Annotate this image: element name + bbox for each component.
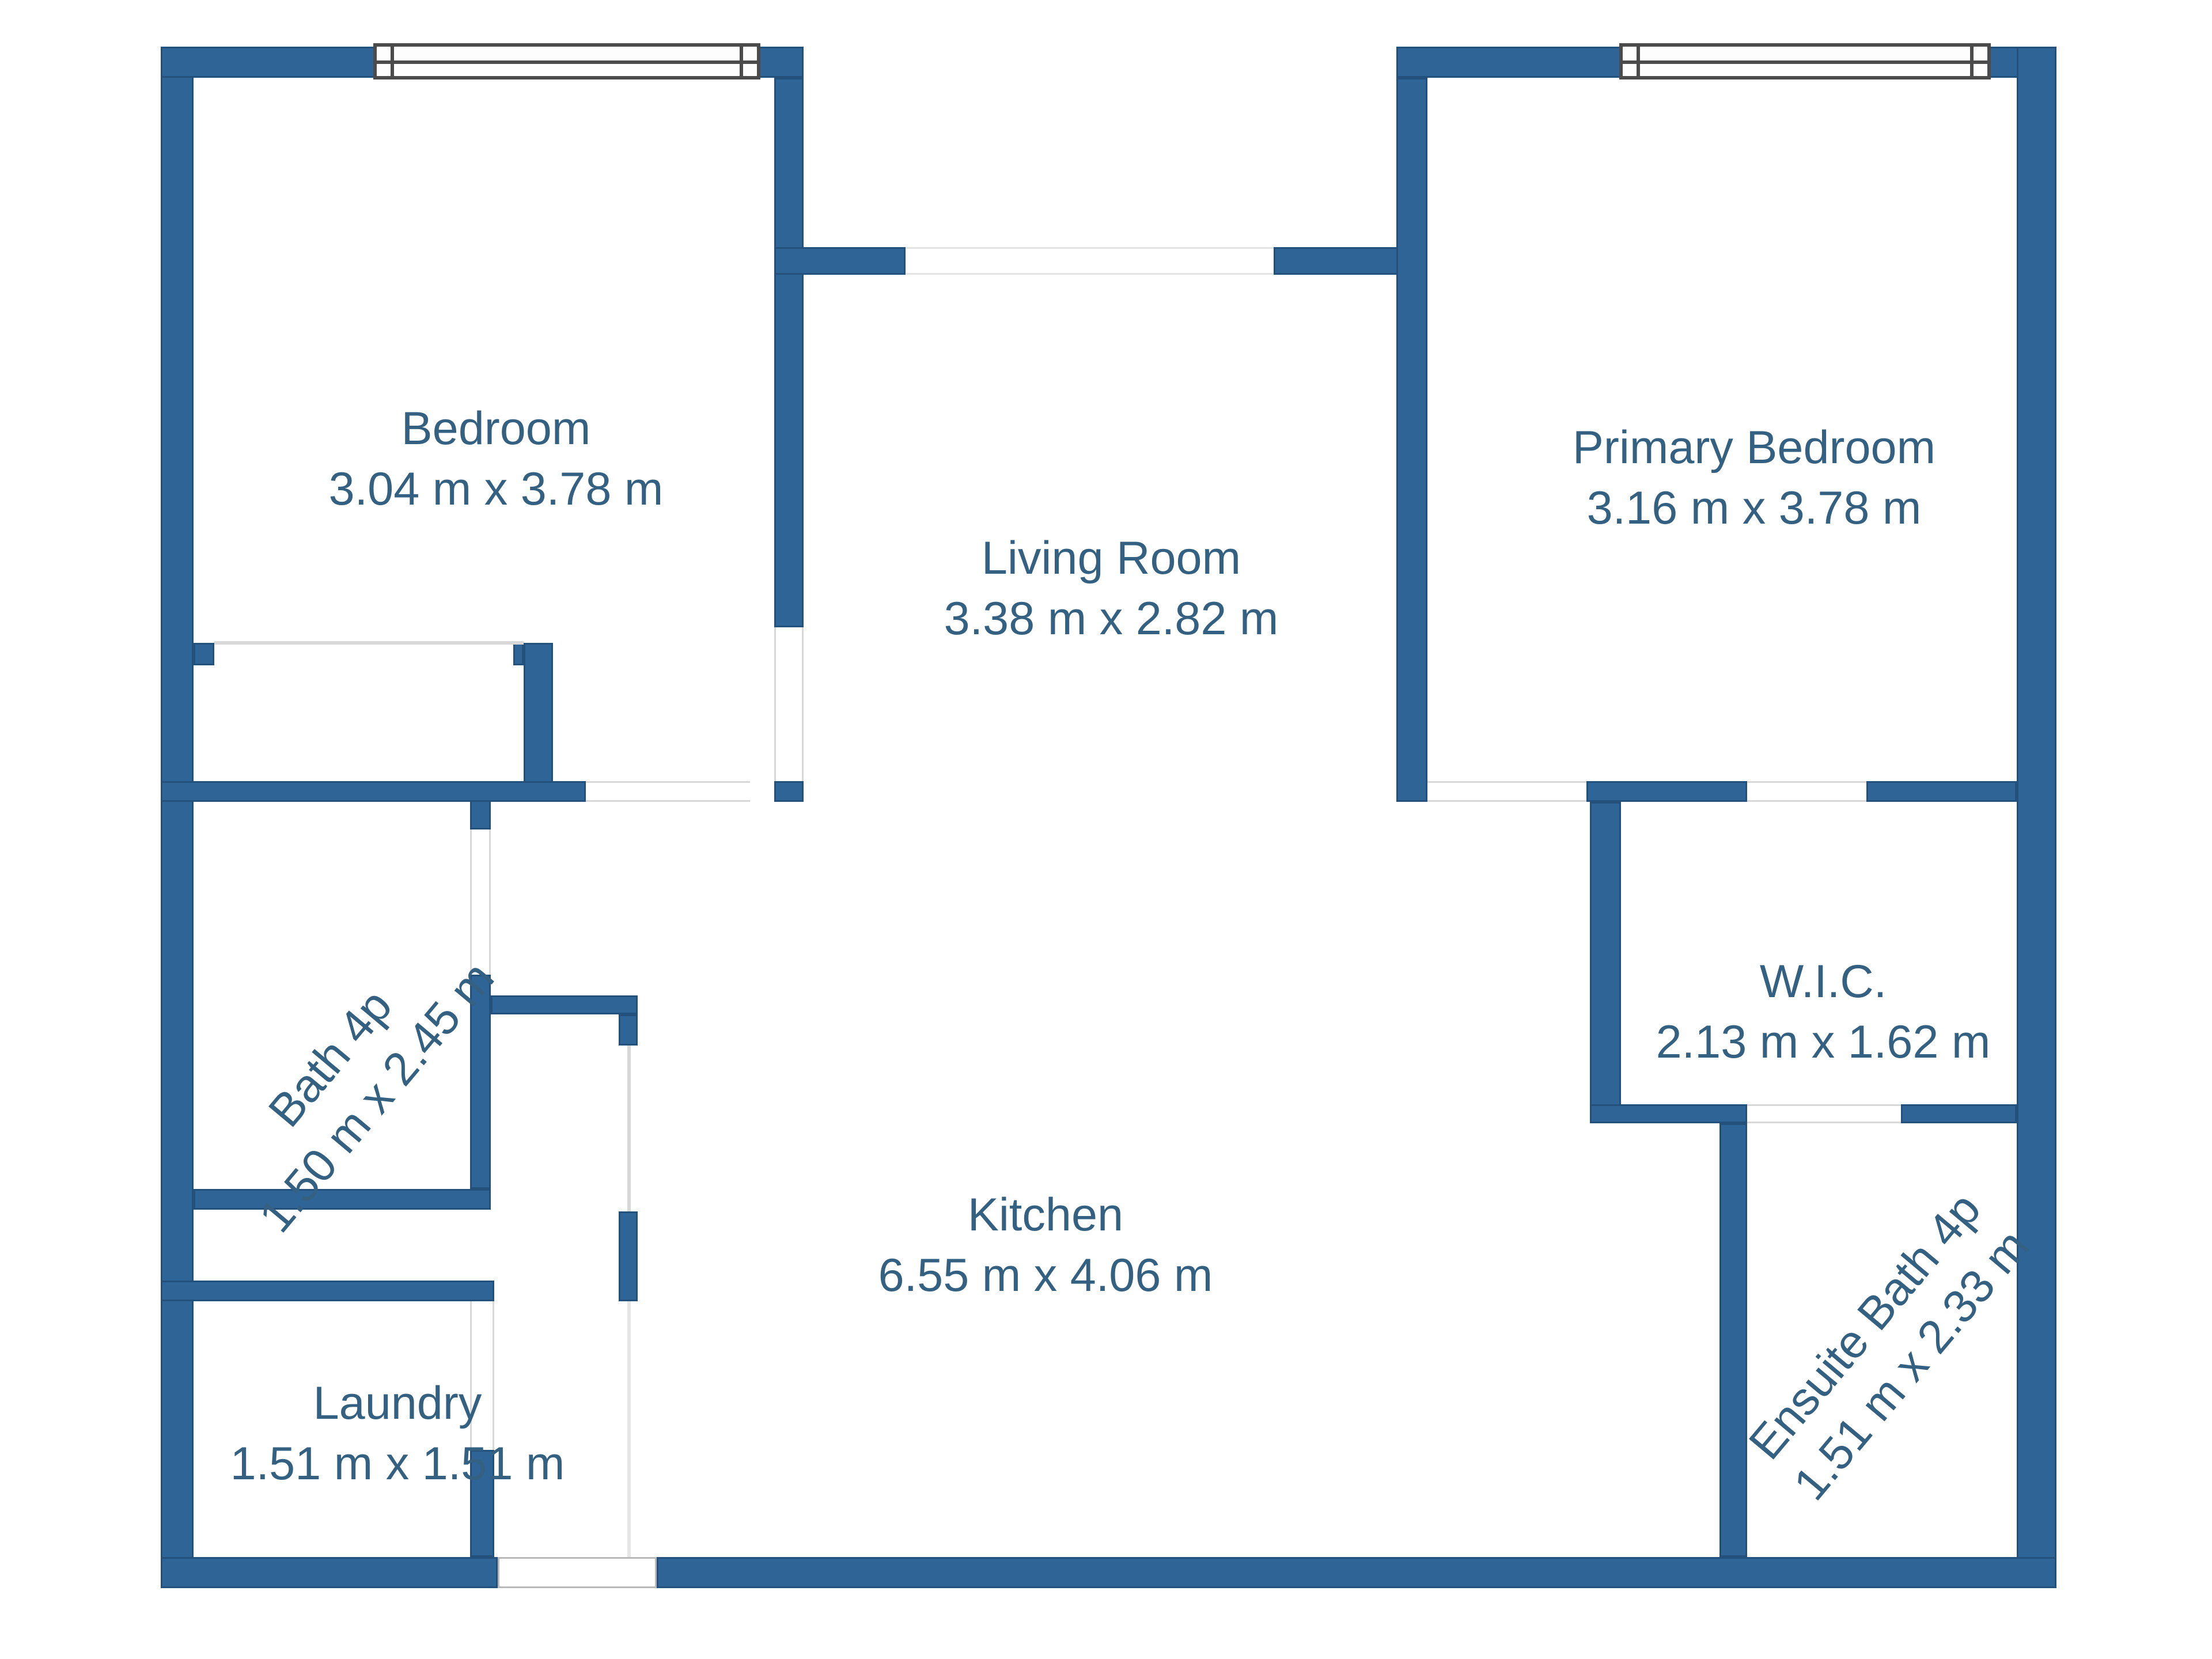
- wall-closet-right: [524, 643, 553, 800]
- room-dimensions: 3.16 m x 3.78 m: [1547, 479, 1961, 539]
- wall-kitchen-jamb-lower: [619, 1211, 638, 1301]
- wall-wic-bottom-right: [1901, 1104, 2017, 1123]
- wall-outer-left: [161, 47, 194, 1588]
- window-cap: [1637, 47, 1640, 76]
- window-midline: [377, 60, 757, 63]
- room-name: Bedroom: [289, 399, 703, 460]
- room-dimensions: 3.38 m x 2.82 m: [904, 589, 1319, 650]
- room-dimensions: 1.51 m x 1.51 m: [190, 1434, 605, 1495]
- wall-wic-bottom-left: [1590, 1104, 1747, 1123]
- window-bedroom: [373, 43, 760, 79]
- wall-outer-right: [2017, 47, 2056, 1588]
- entry-hall-line: [627, 1301, 631, 1557]
- window-primary-bedroom: [1619, 43, 1991, 79]
- door-opening-bedroom: [774, 627, 804, 781]
- wall-kitchen-top: [491, 995, 638, 1014]
- room-name: Living Room: [904, 529, 1319, 589]
- window-midline: [1623, 60, 1987, 63]
- wall-closet-left-stub: [194, 643, 214, 665]
- wall-primary-left: [1396, 78, 1427, 802]
- wall-primary-bottom-right: [1866, 781, 2017, 802]
- wall-primary-bottom-mid: [1586, 781, 1747, 802]
- room-label-wic: W.I.C. 2.13 m x 1.62 m: [1616, 952, 2031, 1073]
- room-label-living-room: Living Room 3.38 m x 2.82 m: [904, 529, 1319, 650]
- wall-bedroom-right-foot: [774, 781, 804, 802]
- room-dimensions: 6.55 m x 4.06 m: [838, 1246, 1253, 1306]
- door-opening-ensuite: [1747, 1104, 1901, 1123]
- door-opening-primary: [1427, 781, 1586, 802]
- room-name: Laundry: [190, 1374, 605, 1434]
- wall-closet-right-jamb: [513, 643, 524, 665]
- room-dimensions: 3.04 m x 3.78 m: [289, 460, 703, 520]
- entry-door-opening: [498, 1557, 657, 1588]
- room-name: Kitchen: [838, 1185, 1253, 1246]
- window-cap: [391, 47, 394, 76]
- wall-outer-bottom-right: [657, 1557, 2056, 1588]
- room-label-primary-bedroom: Primary Bedroom 3.16 m x 3.78 m: [1547, 418, 1961, 539]
- wall-bedroom-right: [774, 78, 804, 627]
- kitchen-boundary-line: [627, 1046, 631, 1211]
- room-name: W.I.C.: [1616, 952, 2031, 1013]
- room-label-laundry: Laundry 1.51 m x 1.51 m: [190, 1374, 605, 1495]
- wall-kitchen-jamb-upper: [619, 1014, 638, 1046]
- room-name: Primary Bedroom: [1547, 418, 1961, 479]
- door-opening-wic: [1747, 781, 1866, 802]
- wall-living-top-left: [774, 247, 906, 275]
- door-opening-hall: [586, 781, 750, 802]
- room-label-ensuite-bath: Ensuite Bath 4p 1.51 m x 2.33 m: [1709, 1149, 2069, 1544]
- floor-plan: Bedroom 3.04 m x 3.78 m Living Room 3.38…: [0, 0, 2212, 1659]
- window-cap: [1970, 47, 1974, 76]
- room-dimensions: 2.13 m x 1.62 m: [1616, 1013, 2031, 1073]
- wall-laundry-top: [161, 1281, 494, 1301]
- wall-outer-bottom-left: [161, 1557, 498, 1588]
- room-label-bedroom: Bedroom 3.04 m x 3.78 m: [289, 399, 703, 520]
- wall-bath-right-stub: [470, 800, 491, 829]
- window-cap: [740, 47, 743, 76]
- room-label-kitchen: Kitchen 6.55 m x 4.06 m: [838, 1185, 1253, 1306]
- wall-hall-row: [161, 781, 586, 802]
- balcony-opening: [906, 247, 1274, 275]
- closet-opening-line: [214, 641, 524, 645]
